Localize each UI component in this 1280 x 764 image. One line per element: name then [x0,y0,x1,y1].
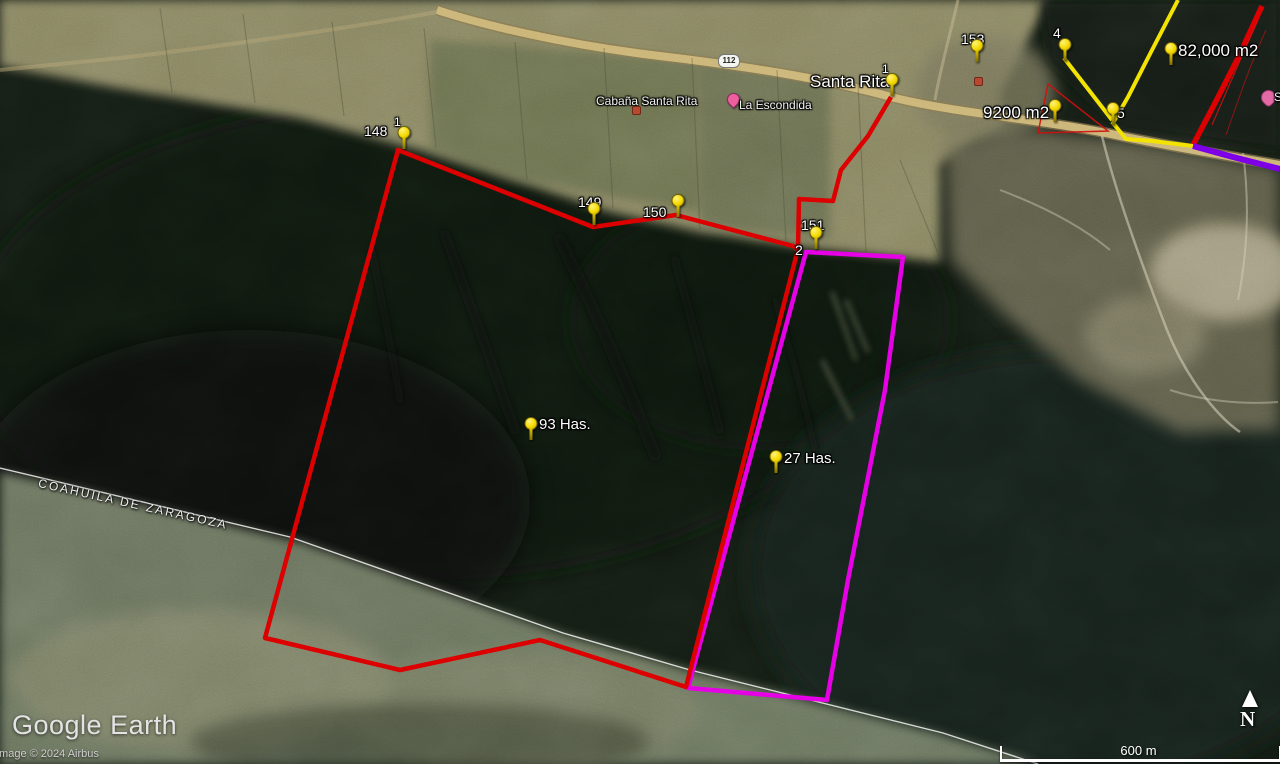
pin-label-9200: 9200 m2 [983,104,1049,121]
pin-label-148: 148 [364,124,387,138]
poi-label-edge: S [1274,91,1280,103]
pushpin-4[interactable] [1058,38,1073,62]
pushpin-153[interactable] [970,39,985,63]
lodging-icon[interactable] [632,106,641,115]
pushpin-150[interactable] [671,194,686,218]
pin-label-93has: 93 Has. [539,417,591,432]
pushpin-93has[interactable] [524,417,539,441]
poi-label-escondida[interactable]: La Escondida [739,99,812,111]
pushpin-82000[interactable] [1164,42,1179,66]
vertex-label-2: 2 [795,243,803,257]
pushpin-5[interactable] [1106,102,1121,126]
pin-label-santa-rita: Santa Rita [810,73,889,90]
pushpin-9200[interactable] [1048,99,1063,123]
imagery-attribution: Image © 2024 Airbus [0,748,99,760]
pushpin-149[interactable] [587,202,602,226]
pushpin-27has[interactable] [769,450,784,474]
road-shield-112: 112 [718,54,740,68]
poi-label-cabana[interactable]: Cabaña Santa Rita [596,95,697,107]
pushpin-santa-rita[interactable] [885,73,900,97]
google-earth-watermark: Google Earth [12,710,177,741]
pushpin-148[interactable] [397,126,412,150]
pin-label-150: 150 [643,205,666,219]
google-earth-viewport[interactable]: 112 Cabaña Santa Rita La Escondida S COA… [0,0,1280,764]
scale-bar-label: 600 m [1000,743,1277,758]
pin-label-82000: 82,000 m2 [1178,42,1258,59]
compass-north-label[interactable]: N [1240,707,1255,732]
pin-label-27has: 27 Has. [784,451,836,466]
building-marker-icon[interactable] [974,77,983,86]
north-arrow-icon[interactable] [1242,690,1258,707]
pushpin-151[interactable] [809,226,824,250]
